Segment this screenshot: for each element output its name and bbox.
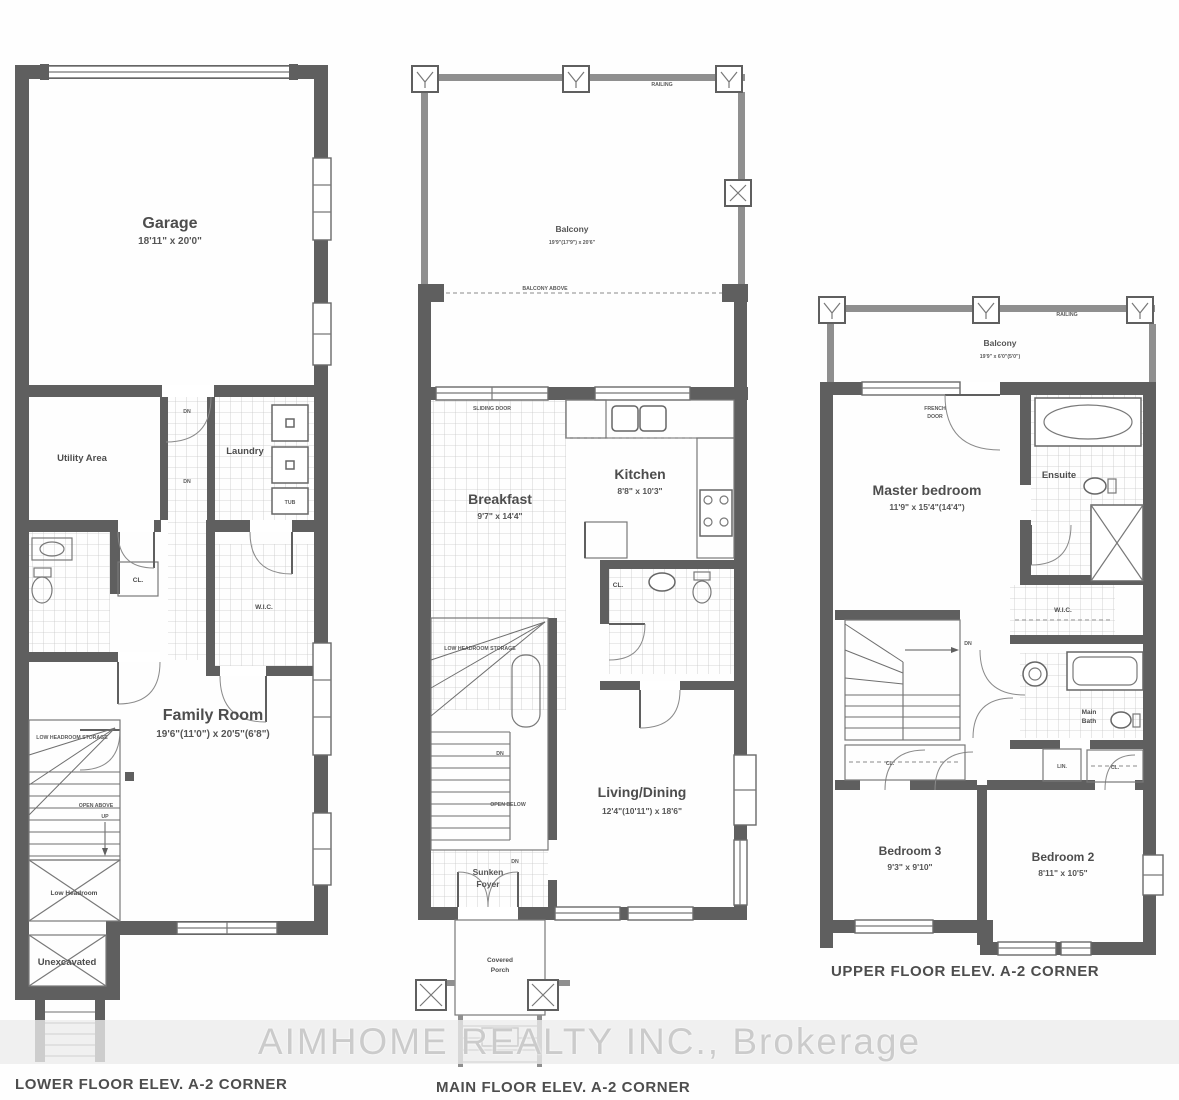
balcony-post: [563, 66, 589, 92]
open-above-label: OPEN ABOVE: [79, 803, 114, 809]
lower-staircase: [29, 720, 134, 860]
cl-label: CL.: [133, 577, 144, 584]
balcony-post: [819, 297, 845, 323]
window: [862, 382, 960, 395]
railing-label: RAILING: [1056, 312, 1077, 318]
laundry-label: Laundry: [226, 446, 264, 457]
lower-floor-caption: LOWER FLOOR ELEV. A-2 CORNER: [15, 1076, 287, 1093]
window: [1061, 942, 1091, 955]
main-windows: [555, 755, 756, 920]
french-door: [945, 395, 1000, 450]
utility-label: Utility Area: [57, 453, 108, 464]
garage-dims: 18'11" x 20'0": [138, 236, 202, 247]
living-dining-label: Living/Dining: [598, 784, 687, 800]
bedroom3-label: Bedroom 3: [879, 844, 942, 858]
railing-label: RAILING: [651, 82, 672, 88]
upper-staircase: [845, 620, 960, 740]
window: [313, 158, 331, 240]
window: [313, 303, 331, 365]
family-room-label: Family Room: [163, 707, 263, 724]
family-room-dims: 19'6"(11'0") x 20'5"(6'8"): [156, 729, 270, 740]
window: [595, 387, 690, 400]
storage-label: LOW HEADROOM STORAGE: [36, 735, 108, 741]
main-floor-plan: RAILING Balcony 19'9"(17'9") x 20'6" BAL…: [400, 60, 775, 1095]
sunken-foyer-label-1: Sunken: [473, 867, 504, 877]
sliding-door-label: SLIDING DOOR: [473, 406, 511, 412]
balcony-post: [973, 297, 999, 323]
main-bath-label-2: Bath: [1082, 718, 1096, 725]
main-tile-floors: [431, 400, 734, 907]
dn-label: DN: [183, 409, 191, 415]
bedroom3-dims: 9'3" x 9'10": [887, 862, 932, 872]
cl-label: CL.: [886, 761, 895, 767]
window: [734, 755, 756, 825]
ensuite-label: Ensuite: [1042, 470, 1076, 481]
unexcavated-label: Unexcavated: [38, 957, 97, 968]
sunken-foyer-label-2: Foyer: [476, 879, 500, 889]
garage-label: Garage: [142, 215, 197, 232]
upper-floor-caption: UPPER FLOOR ELEV. A-2 CORNER: [831, 963, 1099, 980]
balcony-dims: 19'9"(17'9") x 20'6": [549, 240, 596, 246]
watermark-band: AIMHOME REALTY INC., Brokerage: [0, 1020, 1179, 1064]
porch-post: [528, 980, 558, 1010]
floorplan-sheet: Garage 18'11" x 20'0" Utility Area Laund…: [0, 0, 1179, 1100]
breakfast-label: Breakfast: [468, 491, 532, 507]
dn-label: DN: [511, 859, 519, 865]
living-dining-dims: 12'4"(10'11") x 18'6": [602, 806, 682, 816]
main-bath-label-1: Main: [1082, 709, 1097, 716]
bath-tub-icon: [1067, 652, 1143, 690]
lower-floor-plan: Garage 18'11" x 20'0" Utility Area Laund…: [10, 60, 350, 1100]
bedroom2-dims: 8'11" x 10'5": [1038, 868, 1087, 878]
french-door-label-1: FRENCH: [924, 406, 946, 412]
window: [555, 907, 620, 920]
balcony-above-label: BALCONY ABOVE: [522, 286, 568, 292]
window: [628, 907, 693, 920]
bath-sink-icon: [1023, 662, 1047, 686]
porch-post: [416, 980, 446, 1010]
balcony-label: Balcony: [983, 338, 1016, 348]
sliding-door: [436, 387, 548, 400]
dn-label: DN: [964, 641, 972, 647]
up-label: UP: [101, 814, 109, 820]
dryer-icon: [272, 447, 308, 483]
balcony-post: [412, 66, 438, 92]
window: [734, 840, 747, 905]
window: [855, 920, 933, 933]
balcony-post: [1127, 297, 1153, 323]
main-floor-caption: MAIN FLOOR ELEV. A-2 CORNER: [436, 1079, 690, 1096]
wic-label: W.I.C.: [255, 604, 273, 611]
kitchen-dims: 8'8" x 10'3": [617, 486, 662, 496]
window: [998, 942, 1056, 955]
dn-label: DN: [183, 479, 191, 485]
kitchen-label: Kitchen: [614, 466, 665, 482]
garage-door: [40, 64, 298, 80]
open-below-label: OPEN BELOW: [490, 802, 526, 808]
bedroom2-label: Bedroom 2: [1032, 850, 1095, 864]
master-bedroom-label: Master bedroom: [873, 482, 982, 498]
closet: [845, 745, 965, 780]
tub-label: TUB: [285, 500, 296, 506]
breakfast-dims: 9'7" x 14'4": [477, 511, 522, 521]
balcony-post: [725, 180, 751, 206]
shower-icon: [1091, 505, 1143, 581]
watermark-text: AIMHOME REALTY INC., Brokerage: [258, 1021, 921, 1063]
covered-porch-label-2: Porch: [491, 967, 509, 974]
dn-label: DN: [496, 751, 504, 757]
balcony-label: Balcony: [555, 224, 588, 234]
storage-label: LOW HEADROOM STORAGE: [444, 646, 516, 652]
window: [177, 922, 277, 934]
window: [313, 643, 331, 755]
stove-icon: [700, 490, 732, 536]
window: [1143, 855, 1163, 895]
sink-icon: [649, 573, 675, 591]
covered-porch-label-1: Covered: [487, 957, 513, 964]
pantry-closet: [585, 522, 627, 558]
french-door-label-2: DOOR: [927, 414, 943, 420]
window: [313, 813, 331, 885]
balcony-post: [716, 66, 742, 92]
balcony-dims: 19'9" x 6'0"(5'0"): [980, 354, 1021, 360]
ensuite-tub-icon: [1035, 398, 1141, 446]
wic-label: W.I.C.: [1054, 607, 1072, 614]
lin-label: LIN.: [1057, 764, 1067, 770]
master-bedroom-dims: 11'9" x 15'4"(14'4"): [889, 502, 965, 512]
cl2-label: CL.: [1111, 765, 1120, 771]
low-headroom-label: Low Headroom: [51, 890, 98, 897]
washer-icon: [272, 405, 308, 441]
cl-label: CL.: [613, 582, 624, 589]
upper-floor-plan: RAILING Balcony 19'9" x 6'0"(5'0"): [805, 290, 1175, 990]
